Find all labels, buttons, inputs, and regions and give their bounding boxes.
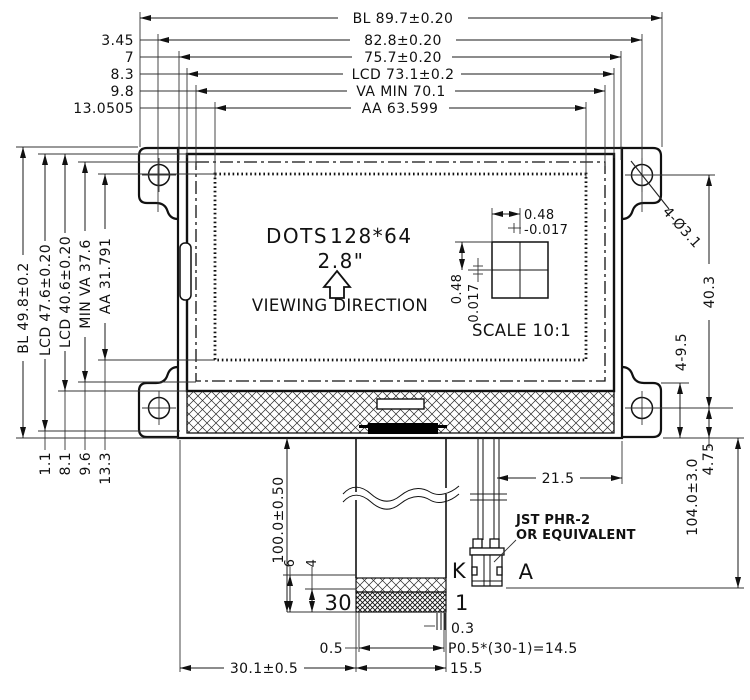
jst-connector: [470, 539, 504, 586]
offset-13-3: 13.3: [98, 452, 114, 485]
strip-slot: [377, 399, 424, 409]
lcd-module-drawing: DOTS 128*64 2.8" VIEWING DIRECTION 0.48 …: [0, 0, 750, 700]
cathode-label: K: [452, 559, 467, 583]
pixel-height-dim: 0.48: [450, 274, 465, 305]
offset-9-8: 9.8: [111, 84, 134, 100]
dim-tab-height: 4-9.5: [674, 333, 690, 371]
dim-hole-to-edge: 4.75: [701, 443, 717, 476]
dim-wire-inset: 21.5: [542, 471, 575, 487]
pin-30-label: 30: [324, 591, 352, 615]
dim-stiffener-height: 6: [283, 559, 298, 568]
dim-width-75: 75.7±0.20: [364, 50, 442, 66]
dim-tail-width: 15.5: [450, 661, 483, 677]
dim-lcd-height-40: LCD 40.6±0.20: [58, 236, 74, 348]
dim-hole-spacing: 40.3: [702, 276, 718, 309]
fpc-break-wave-bottom: [343, 494, 459, 509]
connector-type-line2: OR EQUIVALENT: [516, 528, 636, 543]
backlight-wires: JST PHR-2 OR EQUIVALENT K A: [452, 438, 636, 586]
dim-bl-width: BL 89.7±0.20: [353, 11, 454, 27]
fpc-contact-hatch: [356, 592, 446, 612]
offset-3-45: 3.45: [101, 33, 134, 49]
dim-contact-height: 4: [305, 559, 320, 568]
pixel-width-dim: 0.48: [524, 208, 555, 223]
dim-mounting-holes: 4-Ø3.1: [659, 204, 704, 252]
backlight-strip: [187, 391, 614, 434]
lcd-glass-outline: [187, 154, 614, 391]
dim-width-82: 82.8±0.20: [364, 33, 442, 49]
dim-bl-height: BL 49.8±0.2: [16, 262, 32, 353]
dim-pitch: P0.5*(30-1)=14.5: [448, 641, 578, 657]
offset-9-6: 9.6: [78, 452, 94, 475]
dim-lcd-width: LCD 73.1±0.2: [352, 67, 455, 83]
dimensions-bottom: 100.0±0.50 6 4 30 1 0.3 0.5 P0.5*(30-1)=…: [180, 438, 578, 677]
pin-1-label: 1: [455, 591, 469, 615]
scale-caption: SCALE 10:1: [472, 321, 571, 340]
dim-lcd-height-47: LCD 47.6±0.20: [38, 244, 54, 356]
anode-label: A: [519, 560, 534, 584]
offset-8-1: 8.1: [58, 452, 74, 475]
fpc-break-wave-top: [343, 486, 459, 501]
dim-va-height: MIN VA 37.6: [78, 239, 94, 328]
dim-aa-height: AA 31.791: [98, 238, 114, 315]
fill-port-bump: [180, 243, 191, 300]
viewing-direction-label: VIEWING DIRECTION: [252, 296, 428, 315]
drawing-canvas: DOTS 128*64 2.8" VIEWING DIRECTION 0.48 …: [0, 0, 750, 700]
fpc-solder-bar-body: [368, 423, 438, 434]
dim-edge-margin: 0.5: [320, 641, 343, 657]
dim-fpc-length: 100.0±0.50: [271, 477, 287, 564]
pixel-width-tol-dim: -0.017: [524, 223, 568, 238]
offset-7: 7: [125, 50, 134, 66]
pixel-height-tol-dim: 0.017: [467, 283, 482, 322]
connector-type-line1: JST PHR-2: [515, 513, 590, 528]
display-size: 2.8": [317, 249, 364, 273]
dim-connector-drop: 104.0±3.0: [685, 458, 701, 536]
dim-aa-width: AA 63.599: [362, 101, 439, 117]
offset-1-1: 1.1: [38, 452, 54, 475]
fpc-cable: [343, 438, 459, 630]
dim-pin-width: 0.3: [451, 621, 474, 637]
dim-va-width: VA MIN 70.1: [356, 84, 445, 100]
fpc-stiffener-hatch: [356, 578, 446, 592]
dots-label: DOTS: [266, 224, 328, 248]
offset-8-3: 8.3: [111, 67, 134, 83]
dim-tail-offset: 30.1±0.5: [230, 661, 298, 677]
dots-value: 128*64: [330, 224, 413, 248]
offset-13-0505: 13.0505: [73, 101, 134, 117]
